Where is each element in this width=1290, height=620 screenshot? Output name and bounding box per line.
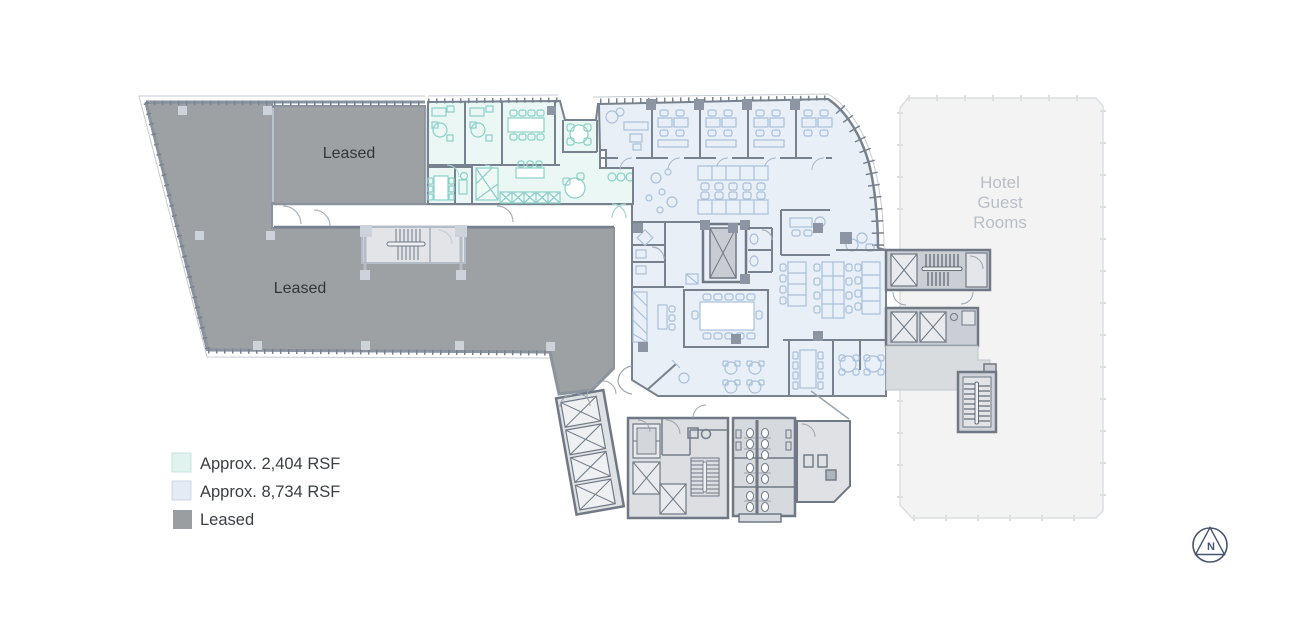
svg-text:Hotel: Hotel xyxy=(980,173,1020,192)
svg-text:N: N xyxy=(1207,541,1215,553)
svg-text:Leased: Leased xyxy=(200,511,254,529)
svg-text:Rooms: Rooms xyxy=(973,213,1027,232)
svg-text:Approx. 8,734 RSF: Approx. 8,734 RSF xyxy=(200,483,340,501)
svg-text:Guest: Guest xyxy=(977,193,1023,212)
svg-text:Approx. 2,404 RSF: Approx. 2,404 RSF xyxy=(200,455,340,473)
svg-text:Leased: Leased xyxy=(274,280,327,297)
svg-text:Leased: Leased xyxy=(323,145,376,162)
